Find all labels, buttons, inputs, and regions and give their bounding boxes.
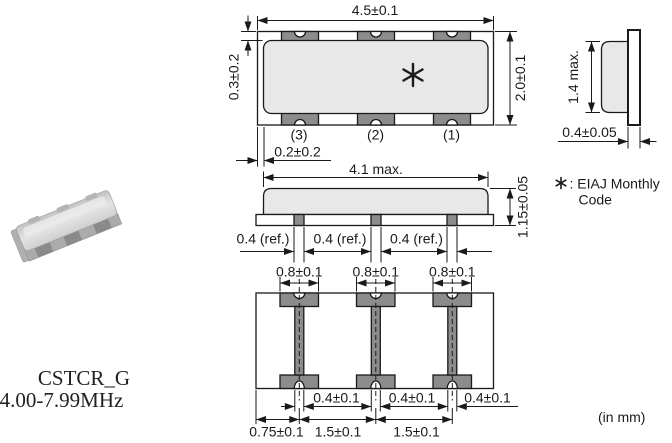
electrode-strip [448,307,457,376]
dim-front-width: 4.1 max. [264,161,489,187]
dim-label: 0.4 (ref.) [390,231,443,247]
terminal [447,215,457,226]
dim-label: 0.2±0.2 [274,144,321,160]
dim-label: 1.15±0.05 [515,176,531,238]
component-photo [9,188,122,264]
pad-notch [371,32,382,38]
dim-label: 1.5±0.1 [393,424,440,440]
pin-label-3: (3) [290,127,307,143]
dim-front-height: 1.15±0.05 [490,176,531,238]
side-view-cap [602,42,629,113]
dim-top-height: 2.0±0.1 [495,32,528,126]
top-view: 4.5±0.1 2.0±0.1 0.3±0.2 (3) (2) (1) 0.2±… [226,2,529,167]
eiaj-note-line2: Code [579,192,613,208]
dim-label: 4.5±0.1 [352,2,399,18]
pad-notch [447,120,458,125]
eiaj-note-line1: : EIAJ Monthly [570,176,660,192]
dim-label: 0.8±0.1 [352,264,399,280]
datasheet-page: 4.5±0.1 2.0±0.1 0.3±0.2 (3) (2) (1) 0.2±… [0,0,672,443]
dim-label: 4.1 max. [349,161,403,177]
front-view: 4.1 max. 1.15±0.05 0.4 (ref.) [237,161,531,263]
side-view-substrate [628,30,640,125]
pad-notch [447,32,458,38]
dim-label: 0.8±0.1 [276,264,323,280]
dim-label: 0.8±0.1 [429,264,476,280]
dim-body-margin: 0.2±0.2 [236,127,331,167]
dimension-drawing: 4.5±0.1 2.0±0.1 0.3±0.2 (3) (2) (1) 0.2±… [0,0,672,443]
front-view-cap [264,189,489,215]
pad-notch [371,120,382,125]
product-label: CSTCR_G 4.00-7.99MHz [0,366,130,412]
dim-label: 2.0±0.1 [512,54,528,101]
dim-label: 0.4±0.1 [389,390,436,406]
dim-strip-widths: 0.4±0.1 0.4±0.1 0.4±0.1 [281,390,518,412]
top-view-lid [264,41,489,114]
electrode-strip [295,307,304,376]
dim-side-height: 1.4 max. [565,42,600,113]
side-view: 1.4 max. 0.4±0.05 [558,30,657,149]
product-series: CSTCR_G [38,366,130,390]
dim-label: 0.3±0.2 [226,53,242,100]
dim-label: 0.4±0.1 [464,390,511,406]
dim-substrate-thickness: 0.4±0.05 [558,124,657,149]
units-note: (in mm) [598,409,645,425]
dim-terminal-refs: 0.4 (ref.) 0.4 (ref.) 0.4 (ref.) [237,227,492,263]
pad-notch [295,120,306,125]
electrode-strip [371,307,380,376]
dim-label: 0.4±0.05 [562,124,617,140]
dim-label: 1.4 max. [565,50,581,104]
dim-label: 0.75±0.1 [249,424,304,440]
bottom-view-land-pattern: 0.8±0.1 0.8±0.1 0.8±0.1 0.4±0.1 0.4±0.1 … [249,264,518,440]
terminal [371,215,381,226]
dim-label: 0.4 (ref.) [237,231,290,247]
dim-top-width: 4.5±0.1 [258,2,494,30]
product-frequency-range: 4.00-7.99MHz [0,388,123,412]
eiaj-note: : EIAJ Monthly Code [556,176,660,208]
pin-label-1: (1) [443,127,460,143]
pin-label-2: (2) [367,127,384,143]
pad-notch [295,32,306,38]
dim-label: 0.4±0.1 [313,390,360,406]
dim-label: 1.5±0.1 [315,424,362,440]
terminal [294,215,304,226]
dim-label: 0.4 (ref.) [314,231,367,247]
asterisk-icon [556,178,566,189]
